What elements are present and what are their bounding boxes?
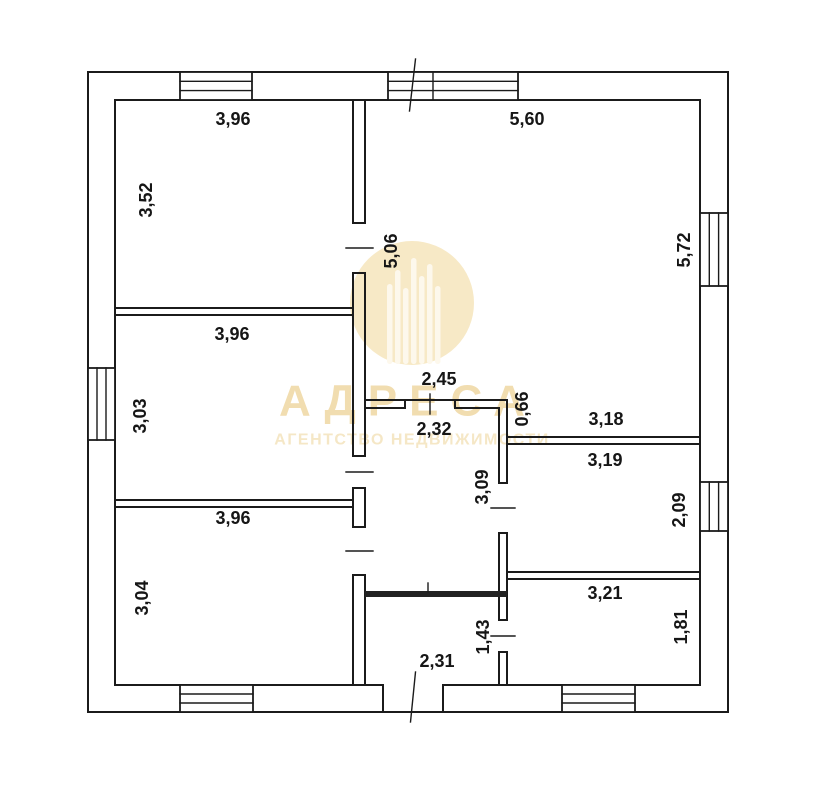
dim-niche-width: 3,18 — [588, 409, 623, 429]
dim-room-right-bottom-width: 3,21 — [587, 583, 622, 603]
dim-hall-height: 3,09 — [472, 469, 492, 504]
dim-room-top-left-width: 3,96 — [215, 109, 250, 129]
window-bottom-left-room — [180, 685, 253, 712]
window-top-left-room — [180, 72, 252, 100]
dim-living-width: 5,60 — [509, 109, 544, 129]
dim-room-bottom-left-height: 3,04 — [132, 580, 152, 615]
floor-plan: АДРЕСА АГЕНТСТВО НЕДВИЖИМОСТИ — [0, 0, 820, 800]
dim-room-bottom-left-width: 3,96 — [215, 508, 250, 528]
window-right-mid-room — [700, 482, 728, 531]
floorplan-image: АДРЕСА АГЕНТСТВО НЕДВИЖИМОСТИ — [0, 0, 820, 800]
dim-living-height-right: 5,72 — [674, 232, 694, 267]
entry-hall-thick-wall — [365, 583, 507, 597]
window-mid-left-room — [88, 368, 115, 440]
agency-watermark: АДРЕСА АГЕНТСТВО НЕДВИЖИМОСТИ — [274, 241, 549, 449]
dim-niche-height: 0,66 — [512, 391, 532, 426]
dim-hall-width: 2,32 — [416, 419, 451, 439]
window-living-room-right — [700, 213, 728, 286]
dim-living-height-left: 5,06 — [381, 233, 401, 268]
dim-room-right-mid-width: 3,19 — [587, 450, 622, 470]
agency-logo-building-icon — [387, 258, 441, 364]
dim-room-top-left-height: 3,52 — [136, 182, 156, 217]
dim-room-mid-left-width: 3,96 — [214, 324, 249, 344]
dim-room-right-bottom-height: 1,81 — [671, 609, 691, 644]
watermark-tagline: АГЕНТСТВО НЕДВИЖИМОСТИ — [274, 432, 549, 449]
window-living-room-top — [388, 72, 518, 100]
dim-room-mid-left-height: 3,03 — [130, 398, 150, 433]
dim-passage-width: 2,45 — [421, 369, 456, 389]
dim-entry-height: 1,43 — [473, 619, 493, 654]
entry-door-opening — [382, 672, 444, 722]
section-mark-bottom — [411, 672, 416, 722]
dim-room-right-mid-height: 2,09 — [669, 492, 689, 527]
window-right-bottom-room — [562, 685, 635, 712]
dim-entry-width: 2,31 — [419, 651, 454, 671]
